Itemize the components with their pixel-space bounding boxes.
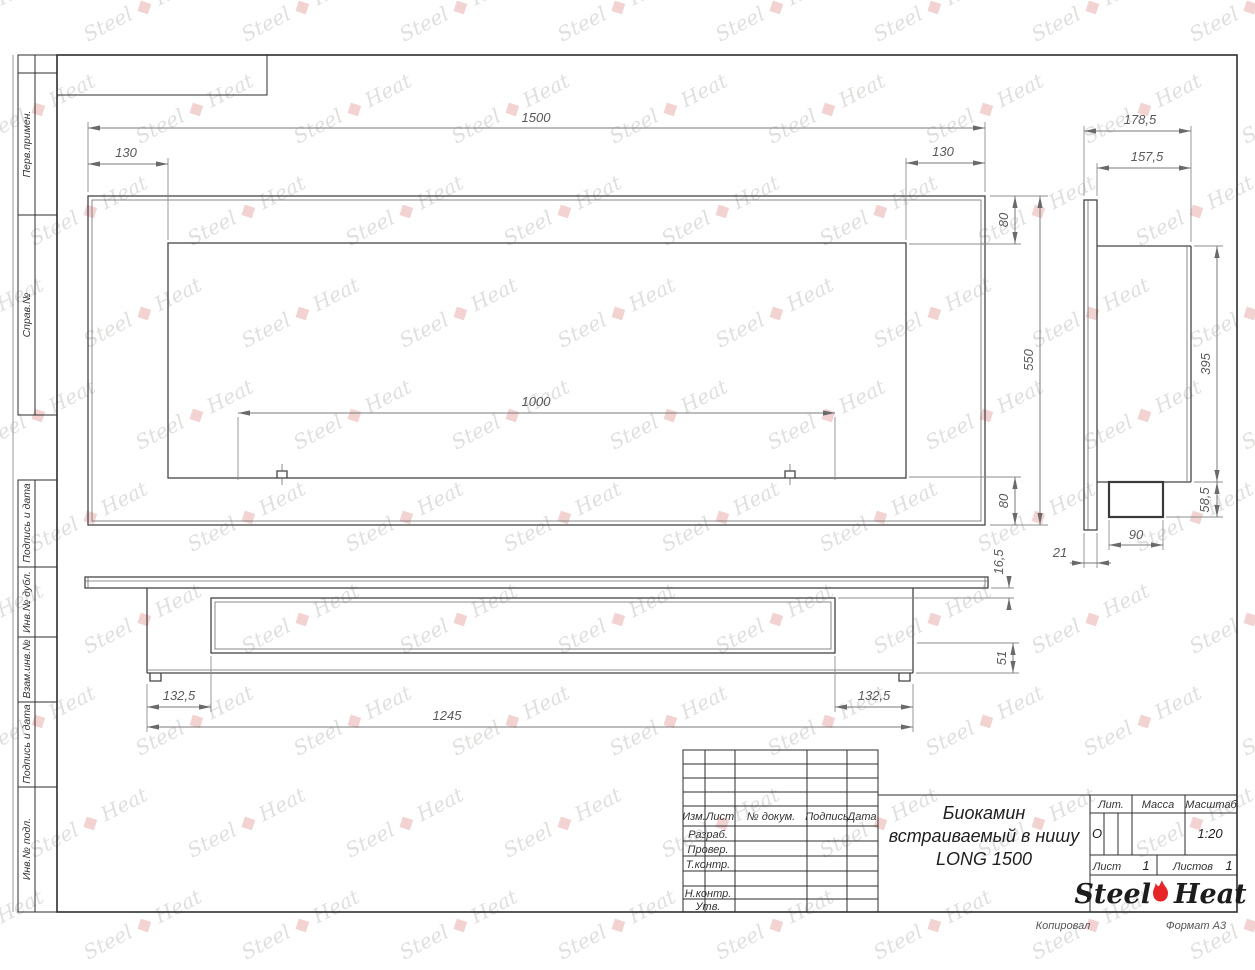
watermark-text: Steel ◆ Heat xyxy=(183,170,310,250)
watermark-text: Steel ◆ Heat xyxy=(0,0,48,46)
watermark-text: Steel ◆ Heat xyxy=(499,782,626,862)
drawing-sheet: Steel ◆ HeatSteel ◆ HeatSteel ◆ HeatStee… xyxy=(0,0,1255,970)
mass-label: Масса xyxy=(1142,799,1175,811)
watermark-text: Steel ◆ Heat xyxy=(657,476,784,556)
dim-side-tray-depth: 90 xyxy=(1129,527,1144,542)
dim-side-panel-thickness: 21 xyxy=(1052,545,1067,560)
dim-bottom-left-inset: 132,5 xyxy=(163,688,196,703)
watermark-text: Steel ◆ Heat xyxy=(921,680,1048,760)
doc-title-line2: встраиваемый в нишу xyxy=(889,826,1080,846)
watermark-text: Steel ◆ Heat xyxy=(553,884,680,964)
steel-heat-logo: Steel Heat xyxy=(1074,879,1247,910)
watermark-text: Steel ◆ Heat xyxy=(289,374,416,454)
dim-front-total-width: 1500 xyxy=(522,110,552,125)
role-developed: Разраб. xyxy=(688,829,728,841)
watermark-text: Steel ◆ Heat xyxy=(605,68,732,148)
technical-drawing: Steel ◆ HeatSteel ◆ HeatSteel ◆ HeatStee… xyxy=(0,0,1255,970)
dim-bottom-mount-width: 1245 xyxy=(433,708,463,723)
watermark-text: Steel ◆ Heat xyxy=(0,884,48,964)
dim-front-height: 550 xyxy=(1021,348,1036,370)
dim-front-inner-width: 1000 xyxy=(522,394,552,409)
doc-title-line1: Биокамин xyxy=(943,803,1026,823)
watermark-text: Steel ◆ Heat xyxy=(25,782,152,862)
watermark-text: Steel ◆ Heat xyxy=(447,374,574,454)
watermark-text: Steel ◆ Heat xyxy=(0,374,100,454)
margin-label-perv-primen: Перв.примен. xyxy=(21,111,33,178)
scale-value: 1:20 xyxy=(1197,826,1223,841)
bottom-view xyxy=(85,577,988,681)
sheets-value: 1 xyxy=(1225,858,1232,873)
margin-column: Перв.примен. Справ.№ Подпись и дата Инв.… xyxy=(18,55,57,912)
watermark-text: Steel ◆ Heat xyxy=(1185,0,1255,46)
role-ncontrol: Н.контр. xyxy=(685,888,732,900)
scale-label: Масштаб xyxy=(1185,799,1237,811)
dim-front-top-inset: 80 xyxy=(996,212,1011,227)
dim-side-tray-height: 58,5 xyxy=(1197,487,1212,513)
watermark-text: Steel ◆ Heat xyxy=(553,578,680,658)
lit-value: О xyxy=(1092,826,1102,841)
watermark-text: Steel ◆ Heat xyxy=(237,272,364,352)
role-tcontrol: Т.контр. xyxy=(686,859,730,871)
copied-label: Копировал xyxy=(1036,920,1091,932)
watermark-text: Steel ◆ Heat xyxy=(395,272,522,352)
watermark-text: Steel ◆ Heat xyxy=(553,272,680,352)
header-list: Лист xyxy=(705,811,734,823)
sheet-value: 1 xyxy=(1142,858,1149,873)
foot-left xyxy=(150,673,161,681)
watermark-layer: Steel ◆ HeatSteel ◆ HeatSteel ◆ HeatStee… xyxy=(0,0,1255,964)
watermark-text: Steel ◆ Heat xyxy=(815,170,942,250)
burner-tray-side xyxy=(1109,482,1163,517)
header-sign: Подпись xyxy=(805,811,849,823)
lit-label: Лит. xyxy=(1097,799,1124,811)
dim-side-body-depth: 157,5 xyxy=(1131,149,1164,164)
logo-word-heat: Heat xyxy=(1173,879,1247,910)
watermark-text: Steel ◆ Heat xyxy=(237,884,364,964)
watermark-text: Steel ◆ Heat xyxy=(25,170,152,250)
watermark-text: Steel ◆ Heat xyxy=(657,170,784,250)
watermark-text: Steel ◆ Heat xyxy=(869,0,996,46)
watermark-text: Steel ◆ Heat xyxy=(1237,68,1255,148)
header-izm: Изм. xyxy=(682,811,705,823)
watermark-text: Steel ◆ Heat xyxy=(499,476,626,556)
margin-label-sprav-no: Справ.№ xyxy=(21,293,33,338)
watermark-text: Steel ◆ Heat xyxy=(237,578,364,658)
watermark-text: Steel ◆ Heat xyxy=(973,170,1100,250)
margin-label-inv-podl: Инв.№ подл. xyxy=(21,818,33,880)
watermark-text: Steel ◆ Heat xyxy=(711,0,838,46)
margin-label-podpis-data-1: Подпись и дата xyxy=(21,483,33,563)
role-checked: Провер. xyxy=(688,844,729,856)
watermark-text: Steel ◆ Heat xyxy=(447,680,574,760)
watermark-text: Steel ◆ Heat xyxy=(79,272,206,352)
watermark-text: Steel ◆ Heat xyxy=(1237,374,1255,454)
watermark-text: Steel ◆ Heat xyxy=(1237,680,1255,760)
watermark-text: Steel ◆ Heat xyxy=(0,68,100,148)
flame-icon xyxy=(1153,880,1168,902)
watermark-text: Steel ◆ Heat xyxy=(0,680,100,760)
dim-bottom-right-inset: 132,5 xyxy=(858,688,891,703)
margin-label-vzam-inv: Взам.инв.№ xyxy=(21,639,33,698)
watermark-text: Steel ◆ Heat xyxy=(289,680,416,760)
watermark-text: Steel ◆ Heat xyxy=(1027,578,1154,658)
watermark-text: Steel ◆ Heat xyxy=(289,68,416,148)
watermark-text: Steel ◆ Heat xyxy=(395,884,522,964)
watermark-text: Steel ◆ Heat xyxy=(341,782,468,862)
watermark-text: Steel ◆ Heat xyxy=(763,68,890,148)
watermark-text: Steel ◆ Heat xyxy=(1079,68,1206,148)
role-approved: Утв. xyxy=(695,901,721,913)
dim-front-bottom-inset: 80 xyxy=(996,493,1011,508)
watermark-text: Steel ◆ Heat xyxy=(395,578,522,658)
watermark-text: Steel ◆ Heat xyxy=(341,170,468,250)
side-view xyxy=(1084,200,1191,530)
watermark-text: Steel ◆ Heat xyxy=(869,884,996,964)
doc-title-line3: LONG 1500 xyxy=(936,849,1032,869)
watermark-text: Steel ◆ Heat xyxy=(711,578,838,658)
watermark-text: Steel ◆ Heat xyxy=(1027,0,1154,46)
watermark-text: Steel ◆ Heat xyxy=(183,782,310,862)
dim-side-total-depth: 178,5 xyxy=(1124,112,1157,127)
margin-label-inv-dubl: Инв.№ дубл. xyxy=(21,571,33,633)
watermark-text: Steel ◆ Heat xyxy=(341,476,468,556)
sheet-label: Лист xyxy=(1092,861,1121,873)
watermark-text: Steel ◆ Heat xyxy=(605,680,732,760)
watermark-text: Steel ◆ Heat xyxy=(553,0,680,46)
dim-front-left-inset: 130 xyxy=(115,145,137,160)
watermark-text: Steel ◆ Heat xyxy=(79,578,206,658)
format-label: Формат А3 xyxy=(1166,920,1227,932)
watermark-text: Steel ◆ Heat xyxy=(711,272,838,352)
watermark-text: Steel ◆ Heat xyxy=(395,0,522,46)
watermark-text: Steel ◆ Heat xyxy=(1027,272,1154,352)
watermark-text: Steel ◆ Heat xyxy=(183,476,310,556)
watermark-text: Steel ◆ Heat xyxy=(237,0,364,46)
dim-bottom-panel-offset: 16,5 xyxy=(991,549,1006,575)
sheets-label: Листов xyxy=(1172,861,1213,873)
watermark-text: Steel ◆ Heat xyxy=(869,272,996,352)
watermark-text: Steel ◆ Heat xyxy=(605,374,732,454)
mount-clip-left xyxy=(277,464,287,485)
foot-right xyxy=(899,673,910,681)
watermark-text: Steel ◆ Heat xyxy=(869,578,996,658)
watermark-text: Steel ◆ Heat xyxy=(79,0,206,46)
header-date: Дата xyxy=(845,811,876,823)
margin-label-podpis-data-2: Подпись и дата xyxy=(21,704,33,784)
header-doc: № докум. xyxy=(747,811,795,823)
watermark-text: Steel ◆ Heat xyxy=(973,476,1100,556)
watermark-text: Steel ◆ Heat xyxy=(763,374,890,454)
watermark-text: Steel ◆ Heat xyxy=(79,884,206,964)
watermark-text: Steel ◆ Heat xyxy=(1185,578,1255,658)
logo-word-steel: Steel xyxy=(1074,879,1151,910)
watermark-text: Steel ◆ Heat xyxy=(25,476,152,556)
dim-side-body-height: 395 xyxy=(1198,352,1213,374)
dim-front-right-inset: 130 xyxy=(932,144,954,159)
front-view xyxy=(88,196,985,525)
watermark-text: Steel ◆ Heat xyxy=(1185,272,1255,352)
watermark-text: Steel ◆ Heat xyxy=(131,374,258,454)
watermark-text: Steel ◆ Heat xyxy=(499,170,626,250)
sheet-frame xyxy=(13,55,1237,912)
mount-clip-right xyxy=(785,464,795,485)
watermark-text: Steel ◆ Heat xyxy=(447,68,574,148)
dim-bottom-tray-drop: 51 xyxy=(994,651,1009,665)
watermark-text: Steel ◆ Heat xyxy=(131,68,258,148)
watermark-text: Steel ◆ Heat xyxy=(1079,680,1206,760)
watermark-text: Steel ◆ Heat xyxy=(815,476,942,556)
